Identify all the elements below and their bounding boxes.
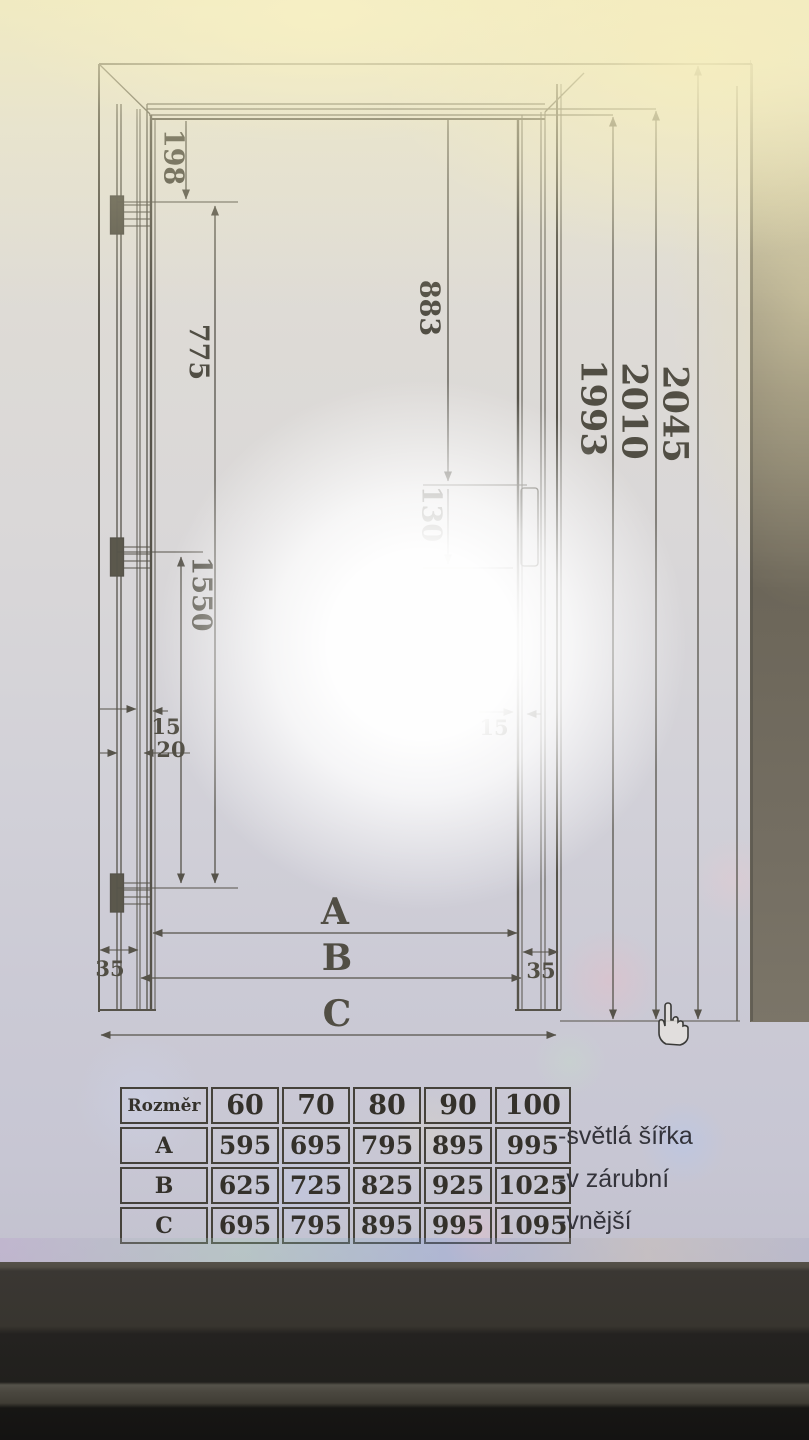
- table-header-row: Rozměr 60 70 80 90 100: [120, 1087, 571, 1124]
- monitor-screen: 198 775 1550 883 130 15 20 15 35 35 A B …: [0, 0, 809, 1262]
- dim-B-label: B: [322, 937, 352, 979]
- dimension-15-left: [100, 709, 168, 711]
- dim-1550-label: 1550: [186, 556, 217, 631]
- screen-moire-strip: [0, 1238, 809, 1262]
- table-cell: 595: [211, 1127, 279, 1164]
- table-header-cell: 90: [424, 1087, 492, 1124]
- latch-plate: [521, 488, 538, 566]
- door-frame-diagram: 198 775 1550 883 130 15 20 15 35 35 A B …: [0, 0, 809, 1262]
- note-v-zarubni: -v zárubní: [558, 1165, 669, 1194]
- table-header-cell: 100: [495, 1087, 571, 1124]
- table-header-cell: 80: [353, 1087, 421, 1124]
- note-vnejsi: -vnější: [558, 1207, 632, 1236]
- row-label: B: [120, 1167, 208, 1204]
- table-cell: 825: [353, 1167, 421, 1204]
- table-row-A: A 595 695 795 895 995: [120, 1127, 571, 1164]
- dim-35-right-label: 35: [526, 958, 555, 983]
- dimension-15-right: [479, 712, 541, 714]
- dimension-heights: [560, 66, 740, 1021]
- hand-pointer-cursor-icon: [659, 1003, 688, 1045]
- dim-2010-label: 2010: [614, 362, 655, 459]
- dim-1993-label: 1993: [573, 359, 614, 456]
- hinge-bottom: [111, 866, 239, 920]
- dim-A-label: A: [320, 891, 350, 933]
- left-jamb: [99, 104, 156, 1010]
- note-svetla-sirka: -světlá šířka: [558, 1122, 693, 1151]
- table-header-cell: Rozměr: [120, 1087, 208, 1124]
- dim-775-label: 775: [183, 324, 214, 380]
- table-header-cell: 70: [282, 1087, 350, 1124]
- table-header-cell: 60: [211, 1087, 279, 1124]
- dim-883-label: 883: [414, 280, 445, 336]
- table-cell: 795: [353, 1127, 421, 1164]
- monitor-photo: 198 775 1550 883 130 15 20 15 35 35 A B …: [0, 0, 809, 1440]
- dim-C-label: C: [323, 993, 352, 1035]
- dim-15-right-label: 15: [479, 715, 508, 740]
- hinge-top: [111, 188, 239, 242]
- dim-198-label: 198: [158, 129, 189, 185]
- dim-2045-label: 2045: [655, 365, 696, 462]
- dim-20-left-label: 20: [156, 737, 185, 762]
- outer-frame: [99, 64, 752, 1021]
- dimension-table: Rozměr 60 70 80 90 100 A 595 695 795 895…: [117, 1084, 574, 1247]
- table-cell: 725: [282, 1167, 350, 1204]
- dim-35-left-label: 35: [95, 956, 124, 981]
- dim-130-label: 130: [416, 486, 447, 542]
- table-row-B: B 625 725 825 925 1025: [120, 1167, 571, 1204]
- frame-header: [147, 104, 656, 119]
- dim-15-left-label: 15: [151, 714, 180, 739]
- table-cell: 895: [424, 1127, 492, 1164]
- table-cell: 925: [424, 1167, 492, 1204]
- monitor-bezel: [0, 1262, 809, 1440]
- table-cell: 695: [282, 1127, 350, 1164]
- table-cell: 625: [211, 1167, 279, 1204]
- row-label: A: [120, 1127, 208, 1164]
